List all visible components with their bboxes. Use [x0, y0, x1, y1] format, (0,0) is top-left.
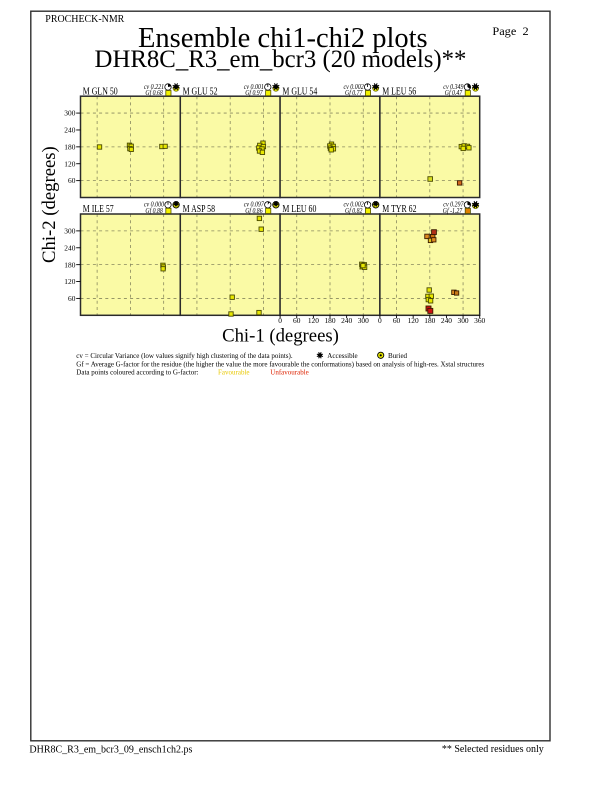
svg-text:M LEU 56: M LEU 56 [382, 86, 416, 97]
svg-text:Gf 0.86: Gf 0.86 [245, 207, 263, 215]
svg-text:Accessible: Accessible [327, 352, 357, 360]
svg-text:Gf = Average G-factor for the: Gf = Average G-factor for the residue (t… [76, 360, 484, 368]
svg-text:60: 60 [68, 176, 76, 185]
svg-text:M ILE 57: M ILE 57 [83, 204, 114, 215]
svg-text:Unfavourable: Unfavourable [270, 368, 308, 376]
svg-text:Page 2: Page 2 [492, 26, 528, 38]
svg-text:DHR8C_R3_em_bcr3 (20 models)**: DHR8C_R3_em_bcr3 (20 models)** [95, 46, 467, 73]
svg-text:Gf 0.88: Gf 0.88 [145, 207, 163, 215]
svg-text:120: 120 [64, 159, 75, 168]
svg-text:120: 120 [64, 277, 75, 286]
svg-text:60: 60 [68, 294, 76, 303]
svg-text:Data points coloured according: Data points coloured according to G-fact… [76, 368, 198, 376]
svg-text:240: 240 [64, 126, 75, 135]
svg-text:180: 180 [64, 260, 75, 269]
svg-text:cv = Circular Variance (low va: cv = Circular Variance (low values signi… [76, 352, 293, 360]
svg-text:PROCHECK-NMR: PROCHECK-NMR [45, 14, 125, 25]
svg-text:300: 300 [64, 226, 75, 235]
svg-text:M GLU 54: M GLU 54 [282, 86, 317, 97]
svg-text:M ASP 58: M ASP 58 [183, 204, 215, 215]
svg-text:240: 240 [64, 243, 75, 252]
svg-text:DHR8C_R3_em_bcr3_09_ensch1ch2.: DHR8C_R3_em_bcr3_09_ensch1ch2.ps [29, 745, 192, 756]
svg-text:M TYR 62: M TYR 62 [382, 204, 416, 215]
svg-text:M LEU 60: M LEU 60 [282, 204, 316, 215]
svg-text:180: 180 [64, 142, 75, 151]
svg-text:Gf 0.97: Gf 0.97 [245, 89, 263, 97]
svg-text:Favourable: Favourable [218, 368, 250, 376]
svg-text:Buried: Buried [388, 352, 408, 360]
svg-text:300: 300 [64, 109, 75, 118]
svg-text:Gf 0.77: Gf 0.77 [345, 89, 363, 97]
svg-text:Gf 0.68: Gf 0.68 [145, 89, 163, 97]
svg-text:Chi-2 (degrees): Chi-2 (degrees) [39, 146, 60, 263]
svg-text:Gf -1.27: Gf -1.27 [443, 207, 463, 215]
svg-text:Gf 0.82: Gf 0.82 [345, 207, 363, 215]
svg-text:M GLN 50: M GLN 50 [83, 86, 118, 97]
svg-text:** Selected residues only: ** Selected residues only [442, 744, 544, 755]
svg-text:Chi-1 (degrees): Chi-1 (degrees) [222, 325, 339, 346]
svg-text:Gf 0.47: Gf 0.47 [445, 89, 463, 97]
svg-text:M GLU 52: M GLU 52 [183, 86, 218, 97]
